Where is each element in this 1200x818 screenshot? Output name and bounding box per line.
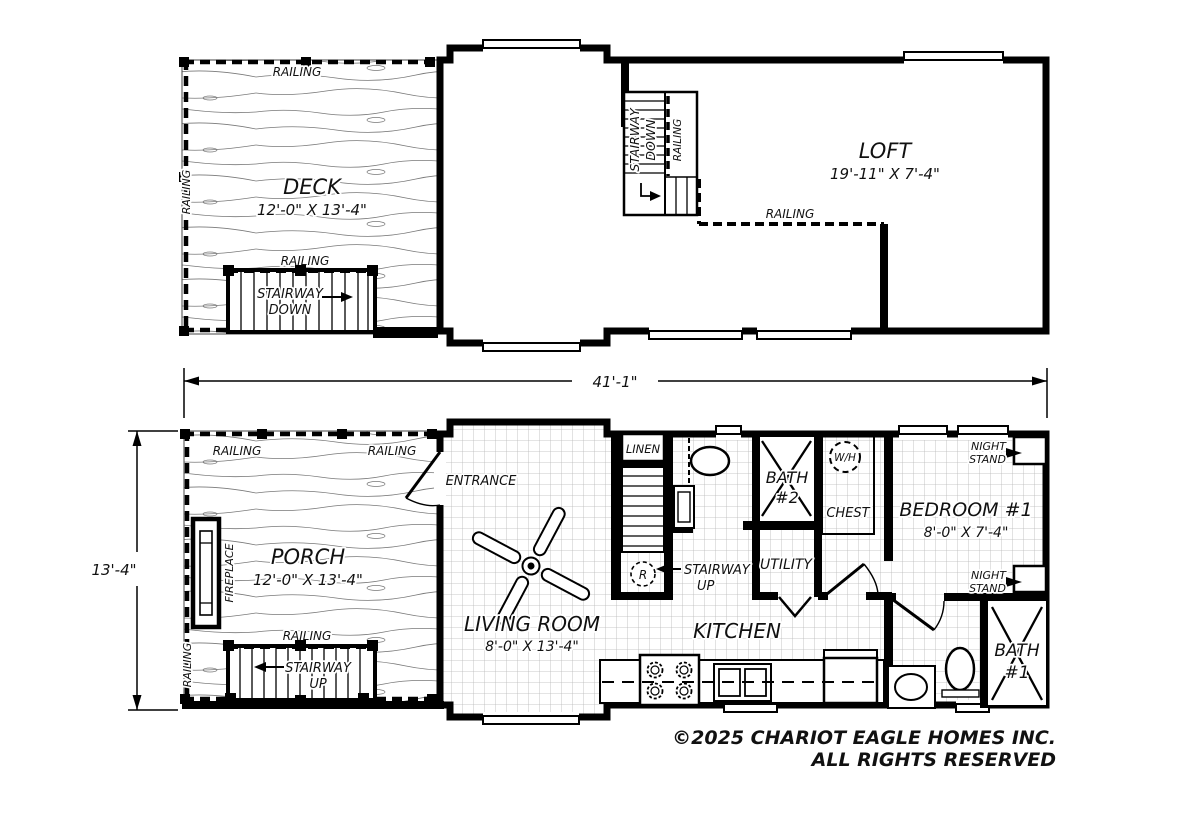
- utility-label: UTILITY: [760, 557, 813, 573]
- deck-size-label: 12'-0" X 13'-4": [257, 201, 367, 219]
- entrance-label: ENTRANCE: [446, 474, 518, 489]
- circled-r-letter: R: [639, 568, 647, 582]
- porch-railing-label-2: RAILING: [368, 444, 417, 458]
- refrigerator: [824, 650, 877, 703]
- kitchen-label: KITCHEN: [693, 619, 781, 643]
- porch-railing-left-label: RAILING: [181, 643, 194, 688]
- loft-size-label: 19'-11" X 7'-4": [830, 165, 940, 183]
- loft-label: LOFT: [859, 139, 914, 163]
- bath2-label-1: BATH: [766, 468, 809, 487]
- bath1-label-2: #1: [1004, 663, 1029, 683]
- night-stand-bottom-label-2: STAND: [969, 582, 1006, 595]
- upper-stair-railing-label: RAILING: [672, 119, 684, 162]
- deck-label: DECK: [283, 175, 343, 199]
- deck-stairway: STAIRWAY DOWN: [223, 265, 378, 332]
- living-room-label: LIVING ROOM: [464, 612, 600, 636]
- copyright-line-1: ©2025 CHARIOT EAGLE HOMES INC.: [672, 727, 1056, 749]
- overall-depth-dimension: 13'-4": [91, 561, 136, 579]
- deck-stairway-label-1: STAIRWAY: [257, 287, 324, 302]
- upper-stairway-label-1: STAIRWAY: [627, 107, 642, 172]
- night-stand-bottom-label-1: NIGHT: [971, 569, 1007, 582]
- fireplace-label: FIREPLACE: [223, 543, 236, 602]
- bath1-sink: [895, 674, 927, 700]
- loft-railing-label: RAILING: [766, 207, 815, 221]
- porch-stair-railing-label: RAILING: [283, 629, 332, 643]
- floor-plan-page: RAILING RAILING DECK 12'-0" X 13'-4" RAI…: [0, 0, 1200, 818]
- bedroom1-label: BEDROOM #1: [899, 499, 1032, 521]
- deck-railing-top-label: RAILING: [273, 65, 322, 79]
- fireplace: [193, 519, 219, 627]
- bath1-label-1: BATH: [994, 641, 1039, 661]
- porch-railing-label-1: RAILING: [213, 444, 262, 458]
- copyright-line-2: ALL RIGHTS RESERVED: [810, 749, 1056, 771]
- porch-stairway: STAIRWAY UP: [223, 640, 378, 706]
- porch-size-label: 12'-0" X 13'-4": [253, 571, 363, 589]
- stove: [640, 655, 699, 705]
- interior-stairway-label-1: STAIRWAY: [684, 563, 751, 578]
- porch-label: PORCH: [271, 545, 345, 569]
- bath2-toilet: [691, 447, 729, 475]
- night-stand-top-label-1: NIGHT: [971, 440, 1007, 453]
- water-heater-label: W/H: [834, 452, 856, 464]
- porch-stairway-label-1: STAIRWAY: [285, 661, 352, 676]
- loft-wall: [880, 224, 888, 334]
- floor-plan-drawing: RAILING RAILING DECK 12'-0" X 13'-4" RAI…: [0, 0, 1200, 818]
- deck-edge-wall: [373, 327, 438, 338]
- upper-exterior-walls: [440, 48, 1046, 343]
- overall-width-dimension: 41'-1": [592, 373, 637, 391]
- night-stand-top-label-2: STAND: [969, 453, 1006, 466]
- chest-label: CHEST: [826, 506, 870, 521]
- porch-stairway-label-2: UP: [309, 677, 327, 692]
- interior-stairway-label-2: UP: [697, 579, 715, 594]
- deck-railing-left-label: RAILING: [180, 170, 193, 215]
- deck-stairway-label-2: DOWN: [269, 303, 312, 318]
- main-floor-plan: RAILING RAILING RAILING FIREPLACE PORCH …: [180, 422, 1046, 724]
- bedroom1-size-label: 8'-0" X 7'-4": [924, 525, 1009, 541]
- upper-stairway-label-2: DOWN: [643, 119, 658, 161]
- upper-floor-plan: RAILING RAILING DECK 12'-0" X 13'-4" RAI…: [179, 40, 1046, 351]
- linen-label: LINEN: [626, 442, 661, 456]
- bath2-label-2: #2: [775, 488, 799, 507]
- living-room-size-label: 8'-0" X 13'-4": [485, 639, 579, 655]
- bath1-toilet: [946, 648, 974, 690]
- upper-stairway-down: STAIRWAY DOWN RAILING: [624, 92, 697, 215]
